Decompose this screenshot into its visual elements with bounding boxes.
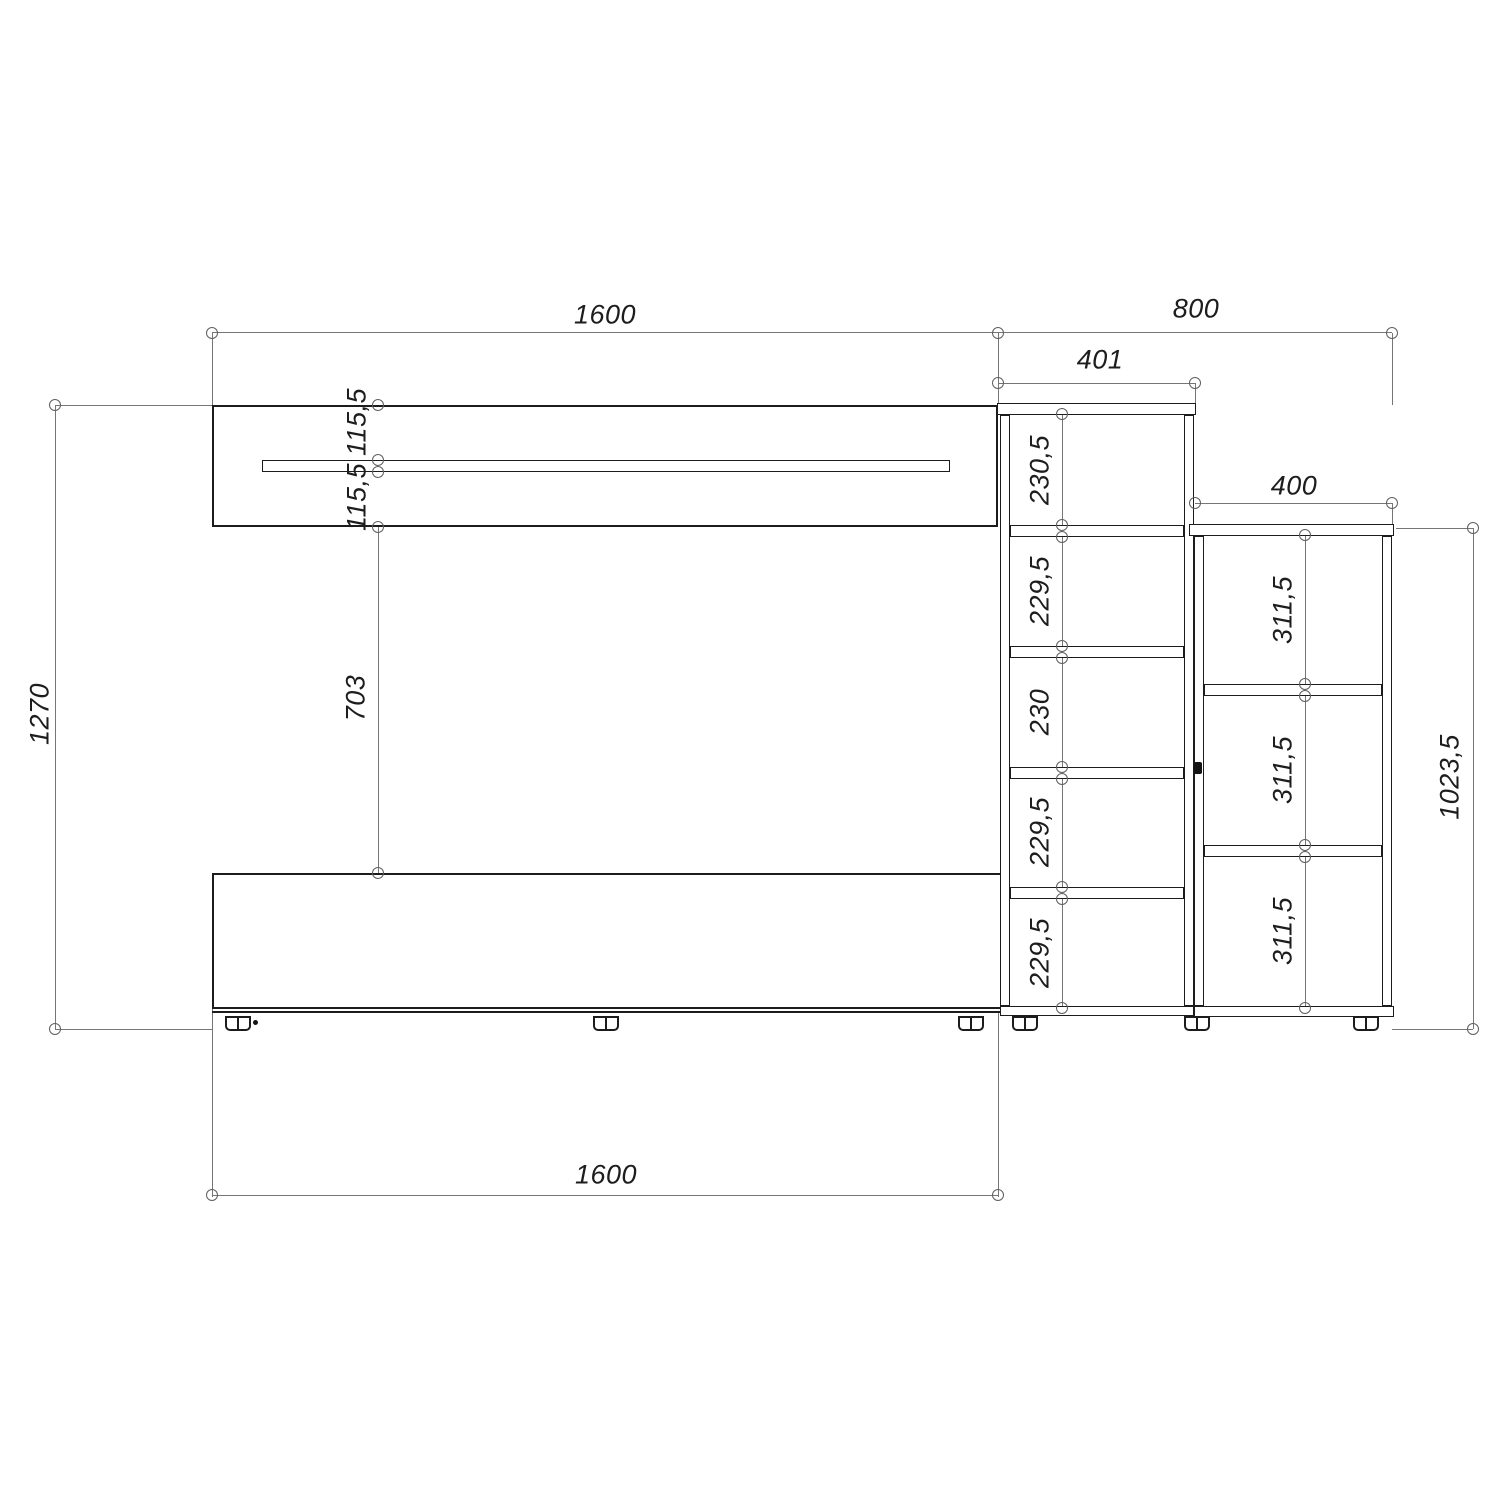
dimension-line-horizontal <box>55 1029 212 1030</box>
furniture-foot-divider <box>605 1018 607 1029</box>
tall-unit-shelf-2 <box>1010 646 1184 658</box>
dimension-line-vertical <box>1473 528 1474 1029</box>
dimension-endpoint-circle <box>372 399 384 411</box>
side-unit-top-panel <box>1189 524 1394 536</box>
dimension-endpoint-circle <box>1299 690 1311 702</box>
furniture-foot <box>225 1016 251 1031</box>
dim-top-width: 1600 <box>574 300 636 331</box>
furniture-foot <box>1012 1016 1038 1031</box>
technical-drawing-canvas: 1600 800 401 400 1600 1270 115,5 115,5 7… <box>0 0 1500 1500</box>
dimension-endpoint-circle <box>1467 1023 1479 1035</box>
side-unit-door-handle <box>1194 762 1202 774</box>
side-unit-shelf-2 <box>1204 845 1382 857</box>
dim-top-right-width: 800 <box>1173 294 1220 325</box>
dim-right-cell-1: 311,5 <box>1268 576 1299 644</box>
dimension-endpoint-circle <box>1299 678 1311 690</box>
dimension-endpoint-circle <box>1386 327 1398 339</box>
furniture-foot-divider <box>970 1018 972 1029</box>
furniture-foot-divider <box>1024 1018 1026 1029</box>
dimension-endpoint-circle <box>1299 839 1311 851</box>
dimension-endpoint-circle <box>372 466 384 478</box>
dimension-line-vertical <box>998 1013 999 1197</box>
dimension-endpoint-circle <box>1056 1002 1068 1014</box>
dimension-endpoint-circle <box>206 327 218 339</box>
dimension-endpoint-circle <box>1056 531 1068 543</box>
dimension-line-horizontal <box>1392 1029 1473 1030</box>
dimension-endpoint-circle <box>49 1023 61 1035</box>
dimension-line-vertical <box>1062 414 1063 1008</box>
tv-cabinet <box>212 873 1002 1009</box>
dim-center-cell-5: 229,5 <box>1025 918 1056 988</box>
dimension-line-horizontal <box>212 332 1392 333</box>
dimension-line-vertical <box>1305 535 1306 1006</box>
dimension-endpoint-circle <box>1299 851 1311 863</box>
dimension-line-vertical <box>212 333 213 405</box>
dimension-endpoint-circle <box>1056 761 1068 773</box>
dimension-line-vertical <box>998 333 999 405</box>
furniture-foot <box>1353 1016 1379 1031</box>
furniture-foot-divider <box>237 1018 239 1029</box>
dimension-endpoint-circle <box>1056 773 1068 785</box>
dim-center-cell-1: 230,5 <box>1025 435 1056 505</box>
dimension-endpoint-circle <box>1056 640 1068 652</box>
dim-right-cell-2: 311,5 <box>1268 736 1299 804</box>
dimension-line-horizontal <box>212 1195 998 1196</box>
dimension-endpoint-circle <box>372 521 384 533</box>
dimension-endpoint-circle <box>1467 522 1479 534</box>
dimension-endpoint-circle <box>1056 881 1068 893</box>
dimension-endpoint-circle <box>1299 1002 1311 1014</box>
dimension-endpoint-circle <box>992 327 1004 339</box>
dim-center-cell-3: 230 <box>1025 689 1056 736</box>
dimension-line-horizontal <box>1396 528 1473 529</box>
dim-total-height: 1270 <box>25 683 56 745</box>
dimension-endpoint-circle <box>1056 408 1068 420</box>
side-unit-shelf-1 <box>1204 684 1382 696</box>
side-unit-right-panel <box>1382 536 1392 1006</box>
tv-cabinet-base-line <box>212 1011 1002 1013</box>
dimension-line-vertical <box>212 1009 213 1197</box>
dimension-endpoint-circle <box>992 1189 1004 1201</box>
dimension-endpoint-circle <box>372 867 384 879</box>
dimension-endpoint-circle <box>1056 893 1068 905</box>
furniture-foot-divider <box>1196 1018 1198 1029</box>
tall-unit-shelf-3 <box>1010 767 1184 779</box>
dimension-line-horizontal <box>55 405 212 406</box>
dimension-endpoint-circle <box>1056 519 1068 531</box>
dimension-endpoint-circle <box>992 377 1004 389</box>
furniture-foot <box>593 1016 619 1031</box>
dim-bottom-width: 1600 <box>575 1160 637 1191</box>
dim-right-cell-3: 311,5 <box>1268 897 1299 965</box>
dim-upper-gap-1: 115,5 <box>342 388 373 456</box>
dimension-line-horizontal <box>1195 503 1392 504</box>
tall-unit-bottom-panel <box>1000 1006 1194 1016</box>
dimension-endpoint-circle <box>206 1189 218 1201</box>
dimension-line-vertical <box>1392 333 1393 405</box>
dim-upper-gap-2: 115,5 <box>342 463 373 531</box>
tall-unit-left-panel <box>1000 415 1010 1006</box>
dim-tall-unit-width: 401 <box>1077 345 1124 376</box>
dimension-endpoint-circle <box>1189 497 1201 509</box>
furniture-foot-divider <box>1365 1018 1367 1029</box>
dimension-endpoint-circle <box>1056 652 1068 664</box>
furniture-foot <box>958 1016 984 1031</box>
cabinet-screw-dot <box>253 1020 258 1025</box>
dimension-line-horizontal <box>998 383 1195 384</box>
dimension-endpoint-circle <box>1299 529 1311 541</box>
dimension-endpoint-circle <box>1386 497 1398 509</box>
dim-side-unit-height: 1023,5 <box>1435 734 1466 820</box>
tall-unit-shelf-1 <box>1010 525 1184 537</box>
dimension-endpoint-circle <box>49 399 61 411</box>
dimension-endpoint-circle <box>372 454 384 466</box>
dim-center-cell-2: 229,5 <box>1025 556 1056 626</box>
dimension-endpoint-circle <box>1189 377 1201 389</box>
tall-unit-shelf-4 <box>1010 887 1184 899</box>
furniture-foot <box>1184 1016 1210 1031</box>
dim-side-unit-width: 400 <box>1271 471 1318 502</box>
dim-center-cell-4: 229,5 <box>1025 797 1056 867</box>
dim-mid-gap: 703 <box>341 675 372 722</box>
tall-unit-top-panel <box>997 403 1196 415</box>
